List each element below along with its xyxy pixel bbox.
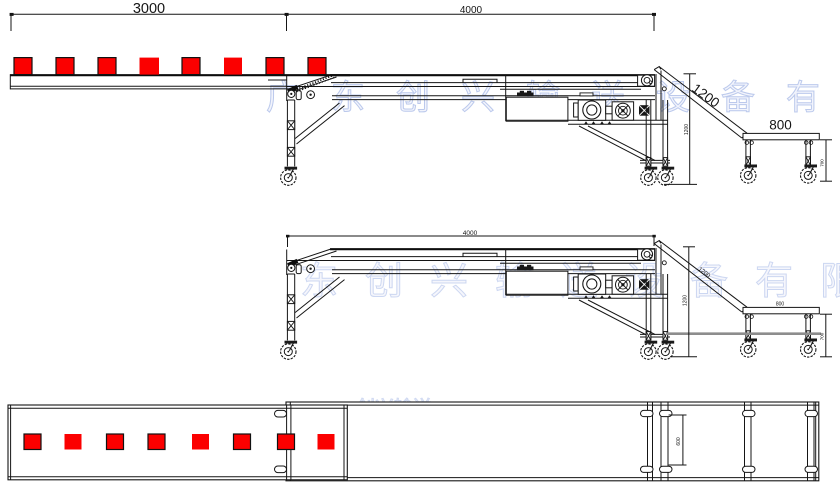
svg-text:600: 600 <box>676 437 682 446</box>
svg-text:4000: 4000 <box>460 5 483 16</box>
svg-text:700: 700 <box>819 332 824 340</box>
svg-text:700: 700 <box>820 159 825 167</box>
svg-text:3000: 3000 <box>133 1 165 17</box>
svg-text:800: 800 <box>769 118 792 133</box>
svg-text:1200: 1200 <box>683 295 689 306</box>
svg-text:800: 800 <box>776 302 785 308</box>
svg-text:东创兴输送设备有限: 东创兴输送设备有限 <box>300 261 840 303</box>
svg-text:1200: 1200 <box>684 124 690 135</box>
svg-text:4000: 4000 <box>463 230 478 237</box>
